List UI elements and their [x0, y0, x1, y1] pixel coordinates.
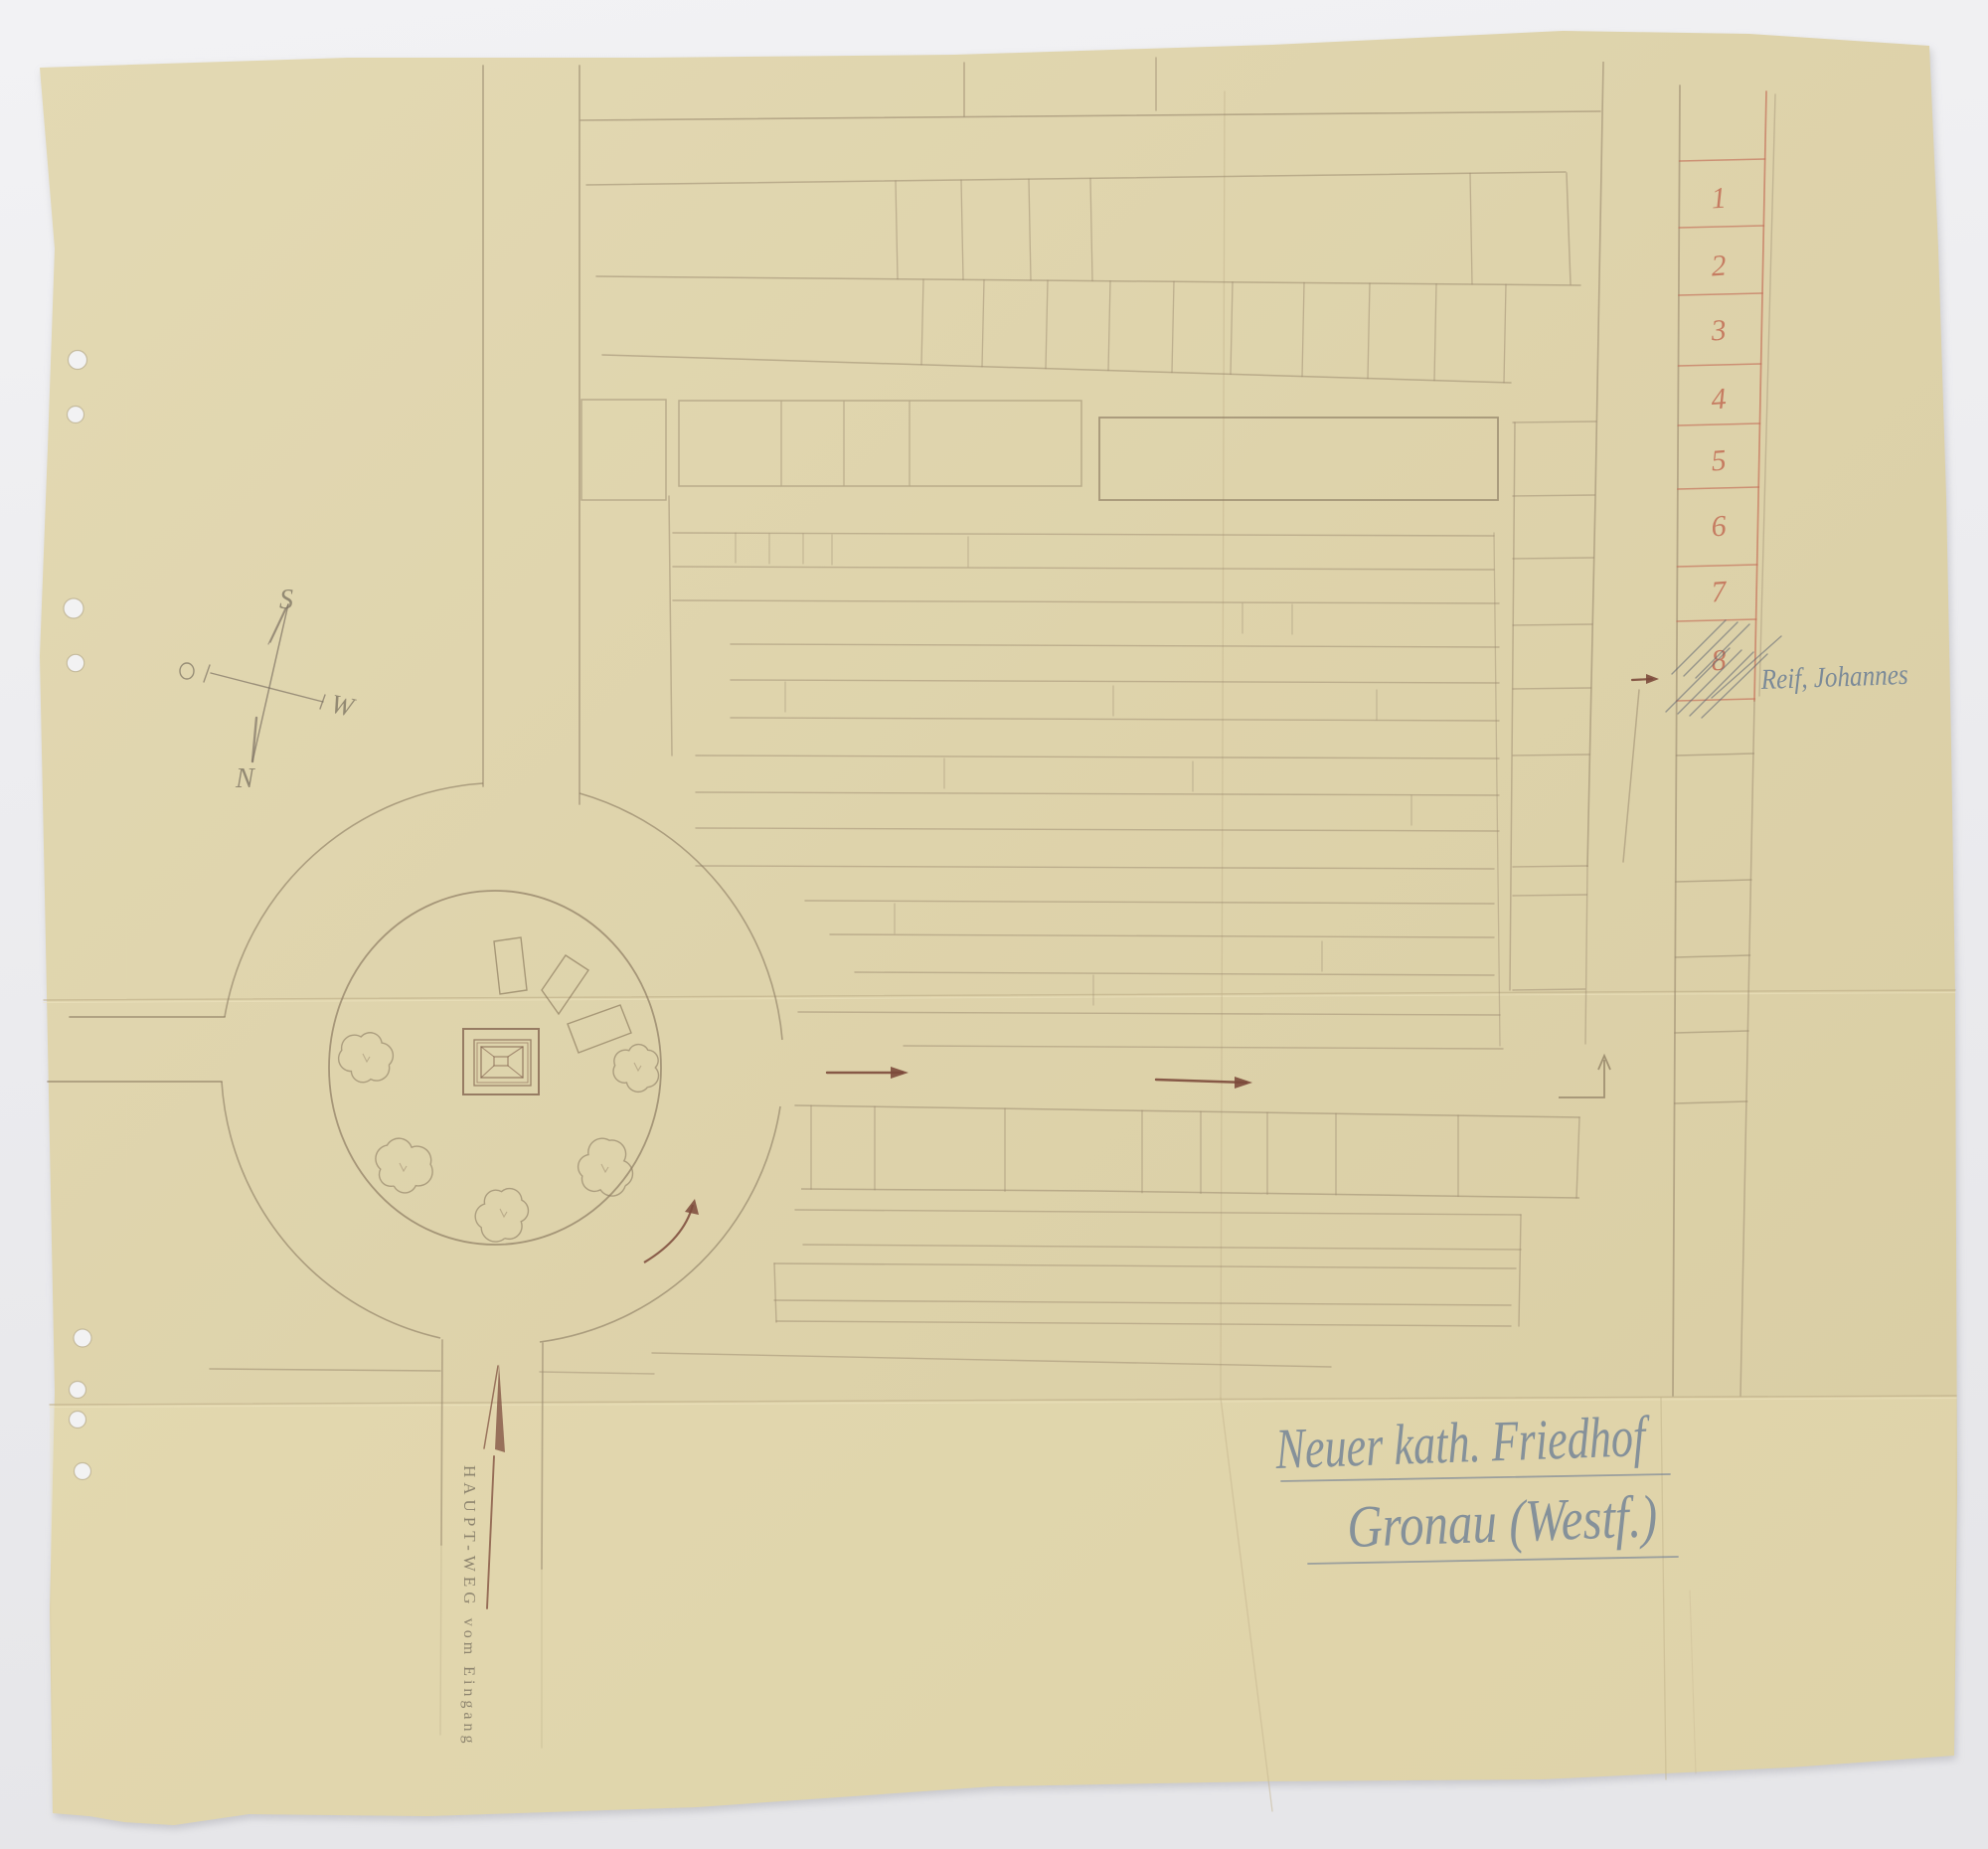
- svg-text:6: 6: [1710, 510, 1727, 544]
- svg-text:Neuer kath. Friedhof: Neuer kath. Friedhof: [1273, 1404, 1651, 1481]
- svg-text:HAUPT-WEG vom Eingang: HAUPT-WEG vom Eingang: [460, 1465, 479, 1748]
- svg-text:4: 4: [1710, 383, 1727, 417]
- svg-text:5: 5: [1710, 444, 1727, 478]
- svg-text:3: 3: [1709, 314, 1727, 348]
- svg-text:Reif, Johannes: Reif, Johannes: [1759, 659, 1908, 696]
- svg-text:1: 1: [1710, 182, 1727, 216]
- svg-text:Gronau (Westf.): Gronau (Westf.): [1346, 1483, 1658, 1560]
- svg-text:2: 2: [1710, 250, 1727, 283]
- svg-text:N: N: [235, 763, 255, 794]
